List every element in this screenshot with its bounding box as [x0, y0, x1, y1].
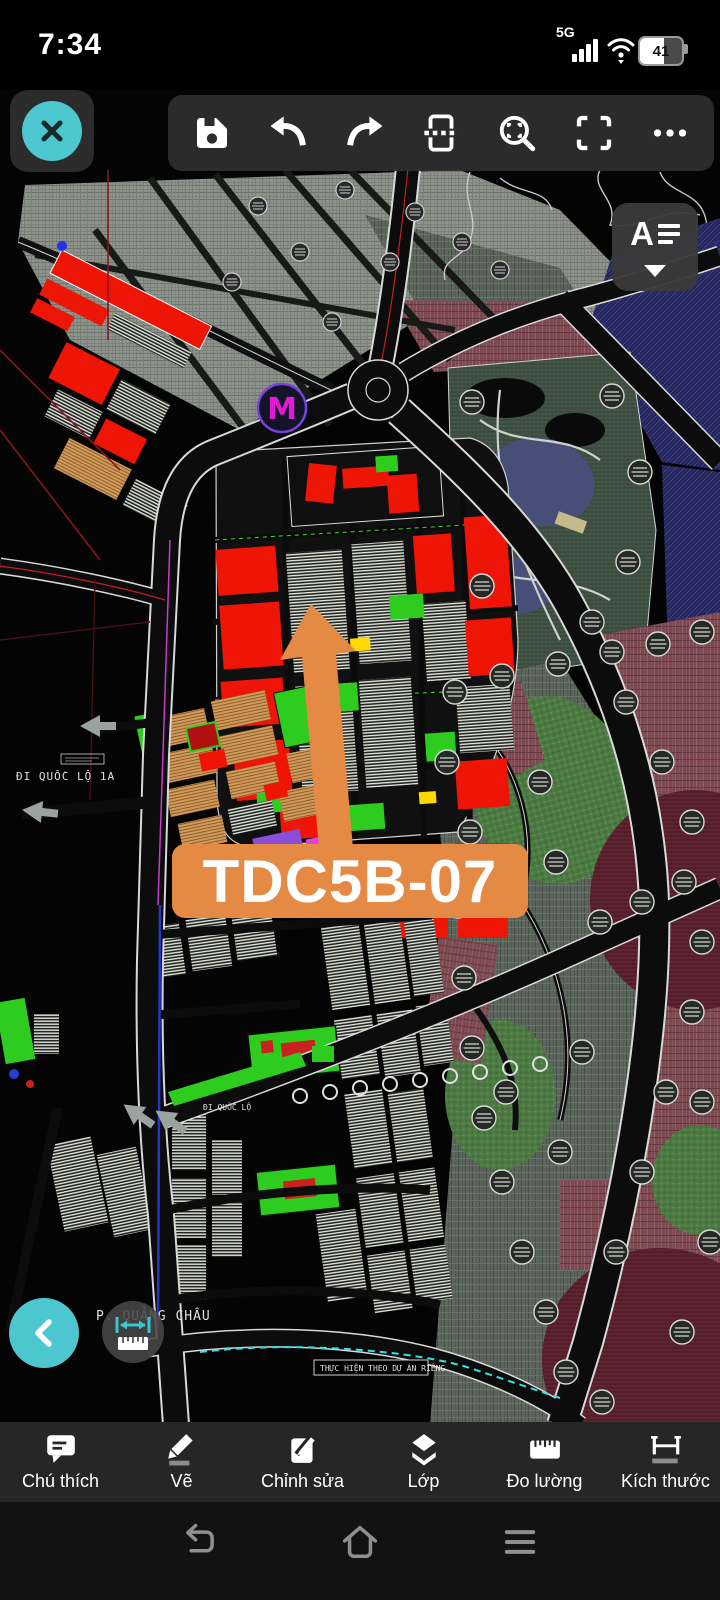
tool-label: Đo lường — [507, 1471, 583, 1492]
battery-icon: 41 — [638, 36, 684, 66]
nav-menu-button[interactable] — [498, 1520, 542, 1564]
comment-annotation-icon — [43, 1432, 79, 1466]
undo-arrow-icon — [267, 112, 309, 154]
annotation-text: TDC5B-07 — [203, 847, 498, 916]
map-logo-m: M — [258, 384, 306, 432]
zoom-window-button[interactable] — [495, 111, 539, 155]
map-label-ql1a: ĐI QUỐC LỘ 1A — [16, 770, 115, 783]
redo-arrow-icon — [344, 112, 386, 154]
map-roundabout — [348, 360, 408, 420]
signal-strength-icon — [572, 38, 600, 62]
nav-home-button[interactable] — [338, 1520, 382, 1564]
style-letter: A — [630, 215, 654, 253]
bottom-toolbar: Chú thích Vẽ Chỉnh sửa Lớp Đo lường — [0, 1422, 720, 1502]
chevron-left-icon — [22, 1311, 66, 1355]
text-style-icon: A — [630, 203, 680, 265]
system-navigation-bar — [0, 1502, 720, 1600]
svg-text:M: M — [267, 392, 297, 427]
viewport-section-icon — [420, 112, 462, 154]
close-icon — [22, 101, 82, 161]
tool-label: Chú thích — [22, 1471, 99, 1492]
annotation-style-button[interactable]: A — [612, 203, 698, 291]
undo-button[interactable] — [266, 111, 310, 155]
tool-label: Chỉnh sửa — [261, 1471, 344, 1492]
quick-measure-button[interactable] — [102, 1301, 164, 1363]
tool-measure[interactable]: Đo lường — [484, 1432, 605, 1492]
pencil-draw-icon — [164, 1432, 200, 1466]
status-bar: 7:34 5G 41 — [0, 0, 720, 90]
ruler-measure-icon — [110, 1309, 156, 1355]
battery-nub — [684, 44, 688, 54]
style-dropdown-arrow[interactable] — [612, 265, 698, 291]
battery-percent: 41 — [640, 38, 682, 64]
layers-stack-icon — [406, 1432, 442, 1466]
map-label-note: THỰC HIỆN THEO DỰ ÁN RIÊNG — [320, 1362, 445, 1373]
more-ellipsis-icon — [650, 113, 690, 153]
tool-draw[interactable]: Vẽ — [121, 1432, 242, 1492]
viewport-section-button[interactable] — [419, 111, 463, 155]
edit-note-icon — [285, 1432, 321, 1466]
more-options-button[interactable] — [648, 111, 692, 155]
zoom-window-icon — [496, 112, 538, 154]
map-label-ql-short: ĐI QUỐC LỘ — [203, 1101, 251, 1112]
save-floppy-icon — [192, 113, 232, 153]
redo-button[interactable] — [343, 111, 387, 155]
top-toolbar — [168, 95, 714, 171]
tool-edit[interactable]: Chỉnh sửa — [242, 1432, 363, 1492]
collapse-toolbar-button[interactable] — [9, 1298, 79, 1368]
style-lines-icon — [658, 220, 680, 248]
fit-fullscreen-icon — [574, 113, 614, 153]
status-time: 7:34 — [38, 28, 102, 62]
ruler-icon — [527, 1432, 563, 1466]
tool-annotate[interactable]: Chú thích — [0, 1432, 121, 1492]
tool-dimension[interactable]: Kích thước — [605, 1432, 720, 1492]
dimension-lines-icon — [648, 1432, 684, 1466]
tool-label: Kích thước — [621, 1471, 710, 1492]
wifi-icon — [606, 34, 636, 64]
tool-label: Vẽ — [170, 1471, 192, 1492]
close-button[interactable] — [10, 90, 94, 172]
annotation-label[interactable]: TDC5B-07 — [172, 844, 528, 918]
save-button[interactable] — [190, 111, 234, 155]
fit-fullscreen-button[interactable] — [572, 111, 616, 155]
tool-layers[interactable]: Lớp — [363, 1432, 484, 1492]
tool-label: Lớp — [408, 1471, 440, 1492]
nav-back-button[interactable] — [178, 1520, 222, 1564]
